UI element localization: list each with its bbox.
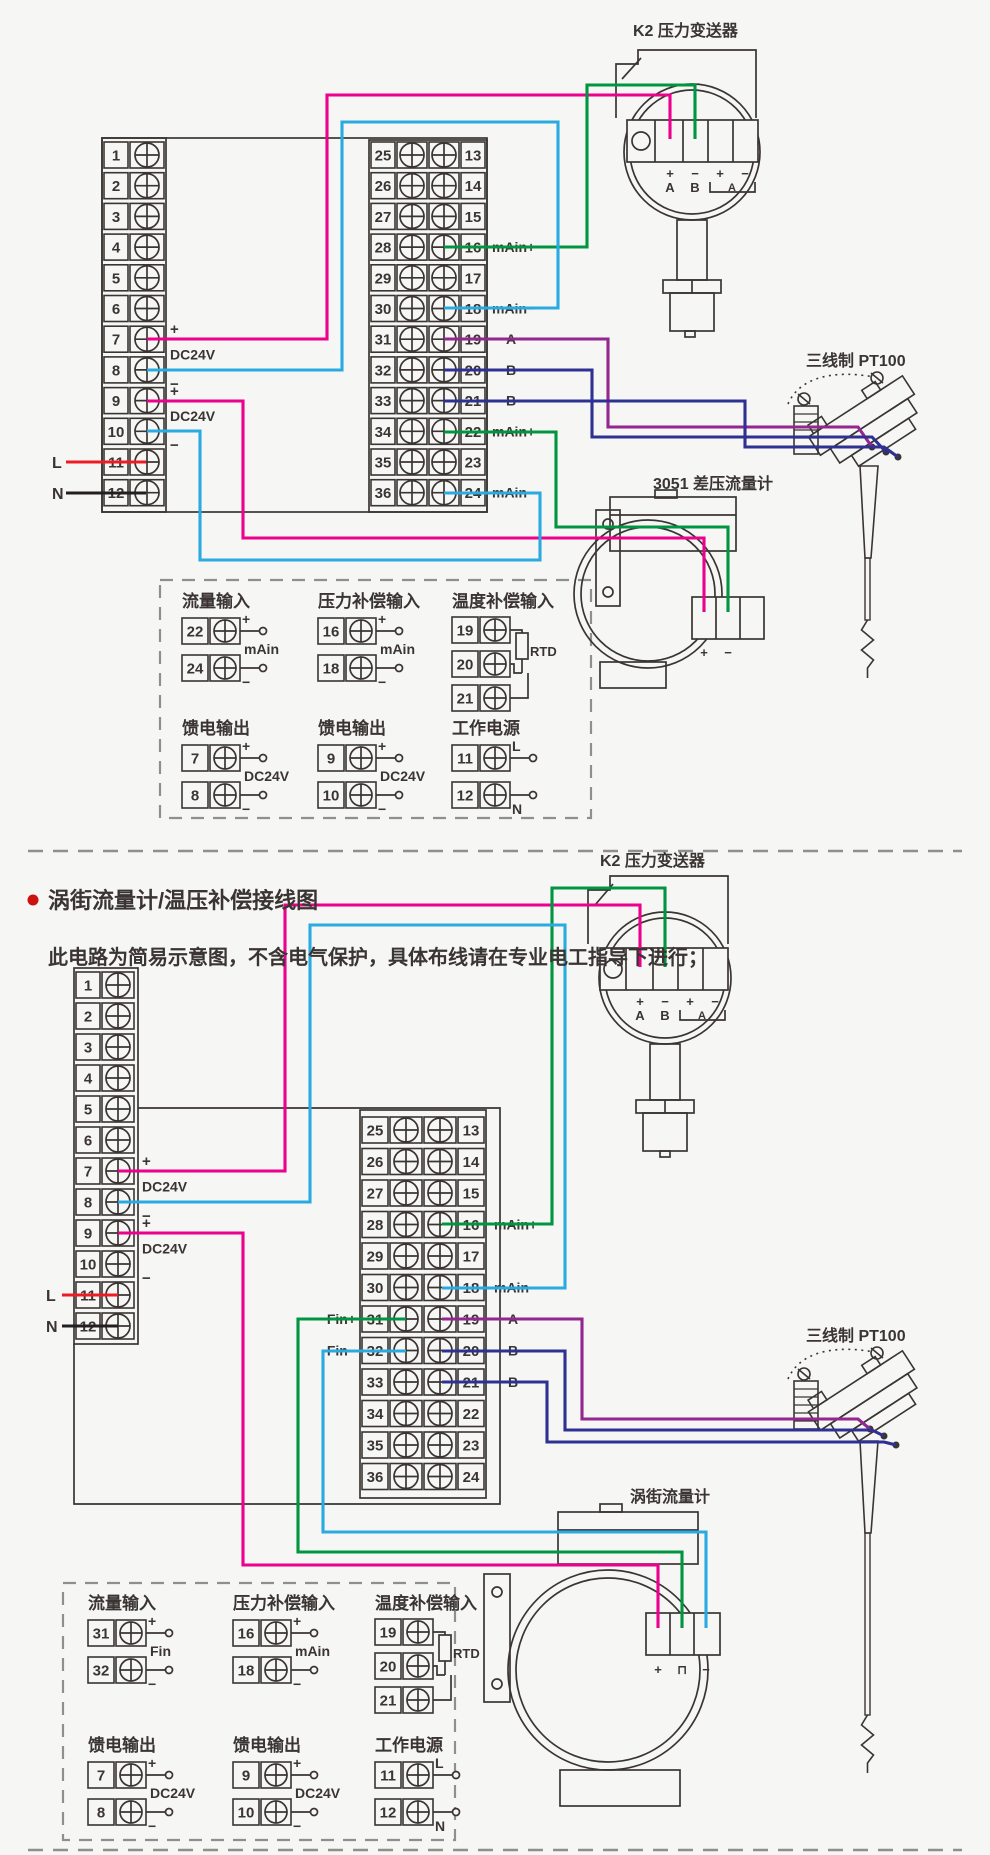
label: DC24V (142, 1179, 188, 1195)
wire-end-icon (166, 1667, 173, 1674)
label: + (378, 738, 386, 754)
meter-mark: − (702, 1662, 710, 1677)
k2-mark: + (686, 994, 694, 1009)
label: + (142, 1215, 151, 1232)
legend-group: 温度补偿输入192021RTD (375, 1593, 480, 1713)
label: 5 (84, 1102, 92, 1119)
device-screws (629, 959, 725, 1645)
label: 14 (463, 1154, 480, 1171)
label: DC24V (170, 408, 216, 424)
meter-mark: + (654, 1662, 662, 1677)
label: N (435, 1818, 445, 1834)
diagram-bottom: 1234567891011122513261427152816291730183… (46, 959, 725, 1841)
label: 35 (367, 1438, 384, 1455)
label: 13 (465, 148, 482, 165)
label: 2 (112, 178, 120, 195)
wire-end-icon (166, 1809, 173, 1816)
k2-sub: A (635, 1008, 645, 1023)
diagram-top: 1234567891011122513261427152816291730183… (52, 131, 763, 819)
label: 18 (323, 661, 340, 678)
dp-flowmeter (574, 490, 764, 688)
label: DC24V (380, 768, 426, 784)
label: 5 (112, 270, 120, 287)
label: 3 (84, 1040, 92, 1057)
label: DC24V (170, 347, 216, 363)
label: + (293, 1613, 301, 1629)
label: 23 (465, 455, 482, 472)
label: 7 (191, 751, 199, 768)
label: 31 (93, 1626, 110, 1643)
wire-21-B (442, 1382, 896, 1445)
bracket-notch (622, 58, 641, 79)
label: 11 (457, 751, 473, 768)
label: + (378, 611, 386, 627)
label: − (148, 1818, 156, 1834)
pt100-label-top: 三线制 PT100 (806, 351, 906, 370)
shape (510, 673, 528, 698)
label: 15 (465, 209, 482, 226)
wire-20-B (444, 370, 886, 452)
label: 9 (242, 1768, 250, 1785)
wire-end-icon (260, 755, 267, 762)
probe-element (862, 1715, 874, 1773)
wire-end-icon (311, 1809, 318, 1816)
wire-end-icon (311, 1630, 318, 1637)
terminal-strip-right: 2513261427152816291730183119322033213422… (360, 1110, 486, 1498)
terminal-strip-right: 2513261427152816291730183119322033213422… (369, 140, 487, 512)
shape (862, 1357, 881, 1374)
label: 22 (187, 624, 204, 641)
label: 馈电输出 (233, 1735, 301, 1755)
k2-sub: A (665, 180, 675, 195)
label: 8 (84, 1195, 92, 1212)
label: 26 (375, 178, 392, 195)
wire-k2-to-16 (444, 85, 695, 247)
label: − (242, 801, 250, 817)
wiring-diagram-page: 1234567891011122513261427152816291730183… (0, 0, 990, 1855)
section-subtitle: 此电路为简易示意图，不含电气保护，具体布线请在专业电工指导下进行； (48, 945, 708, 969)
legend-group: 温度补偿输入192021RTD (452, 591, 557, 711)
label: 10 (323, 788, 340, 805)
k2-mark: − (661, 994, 669, 1009)
vortex-meter-label: 涡街流量计 (630, 1487, 710, 1506)
pt100-sensor (788, 367, 931, 678)
label: − (170, 437, 179, 454)
label: 31 (375, 332, 392, 349)
legend: 流量输入31+32−Fin压力补偿输入16+18−mAin温度补偿输入19202… (63, 1583, 480, 1840)
shape (862, 382, 881, 399)
label: 4 (112, 240, 121, 257)
probe-element (862, 620, 874, 678)
label: + (170, 383, 179, 400)
wire-end-icon (260, 665, 267, 672)
labels-layer: 涡街流量计/温压补偿接线图 此电路为简易示意图，不含电气保护，具体布线请在专业电… (28, 21, 963, 1850)
shape (831, 1374, 917, 1438)
k2-mark: + (716, 166, 724, 181)
label: DC24V (295, 1785, 341, 1801)
pt100-sensor (788, 1342, 931, 1773)
label: 19 (457, 623, 474, 640)
probe-shaft (865, 558, 870, 620)
wiring-diagram-canvas: 1234567891011122513261427152816291730183… (0, 0, 990, 1855)
label: 18 (238, 1663, 255, 1680)
meter-flange (484, 1574, 510, 1702)
label: 30 (375, 301, 392, 318)
connection-head (803, 1342, 931, 1455)
label: 压力补偿输入 (233, 1593, 335, 1613)
shape (808, 376, 914, 455)
k2-sub: A (698, 1010, 706, 1022)
label: − (378, 674, 386, 690)
k2-label-top: K2 压力变送器 (633, 21, 739, 40)
wire-end-icon (396, 628, 403, 635)
label: 9 (327, 751, 335, 768)
label: 4 (84, 1071, 93, 1088)
wire-end-icon (260, 628, 267, 635)
label: 23 (463, 1438, 480, 1455)
label: 27 (375, 209, 392, 226)
label: 34 (375, 424, 392, 441)
label: 温度补偿输入 (375, 1593, 477, 1613)
probe-shaft (865, 1533, 870, 1715)
label: 馈电输出 (318, 718, 386, 738)
label: 32 (375, 362, 392, 379)
meter-flange (596, 510, 620, 606)
label: L (46, 1288, 56, 1305)
terminal-strip-left: 123456789101112 (102, 138, 166, 512)
label: 7 (97, 1768, 105, 1785)
k2-mark: − (741, 166, 749, 181)
label: 6 (112, 301, 120, 318)
label: DC24V (244, 768, 290, 784)
label: 19 (380, 1625, 397, 1642)
label: 12 (380, 1805, 397, 1822)
dp-meter-label: 3051 差压流量计 (653, 474, 773, 493)
label: 25 (375, 148, 392, 165)
pressure-transmitter-top (616, 50, 760, 337)
label: 33 (367, 1375, 384, 1392)
legend: 流量输入22+24−mAin压力补偿输入16+18−mAin温度补偿输入1920… (160, 580, 591, 818)
label: 29 (375, 270, 392, 287)
legend-group: 馈电输出9+10−DC24V (318, 718, 426, 817)
label: 13 (463, 1123, 480, 1140)
label: 7 (112, 332, 120, 349)
wire-end-icon (396, 755, 403, 762)
label: 17 (465, 270, 482, 287)
label: 33 (375, 393, 392, 410)
legend-group: 馈电输出7+8−DC24V (88, 1735, 196, 1834)
wire-31-fin (298, 1319, 682, 1628)
probe-taper (860, 466, 878, 558)
label: 12 (457, 788, 474, 805)
wire-end-icon (453, 1809, 460, 1816)
legend-group: 馈电输出7+8−DC24V (182, 718, 290, 817)
shape (433, 1666, 445, 1675)
label: + (148, 1755, 156, 1771)
wire-end-icon (311, 1667, 318, 1674)
rtd-resistor-icon (516, 633, 528, 659)
label: 流量输入 (88, 1593, 156, 1613)
label: 21 (457, 691, 474, 708)
probe-taper (860, 1441, 878, 1533)
label: 10 (108, 424, 125, 441)
label: 8 (191, 788, 199, 805)
label: + (170, 321, 179, 338)
bullet-icon (28, 895, 39, 906)
label: 21 (380, 1693, 397, 1710)
vortex-flowmeter (484, 1504, 720, 1806)
label: − (148, 1676, 156, 1692)
label: − (142, 1270, 151, 1287)
label: + (293, 1755, 301, 1771)
label: mAin (380, 641, 415, 657)
k2-mark: − (691, 166, 699, 181)
label: L (435, 1755, 444, 1771)
label: + (242, 738, 250, 754)
wire-end-icon (453, 1772, 460, 1779)
label: 温度补偿输入 (452, 591, 554, 611)
neck (650, 1044, 680, 1100)
label: 10 (238, 1805, 255, 1822)
terminal-strip-left: 123456789101112 (74, 968, 138, 1344)
wire-end-icon (396, 792, 403, 799)
cap-chain-arc (788, 1349, 874, 1379)
wire-end-icon (530, 792, 537, 799)
label: + (148, 1613, 156, 1629)
label: 11 (380, 1768, 396, 1785)
meter-cap (558, 1512, 698, 1564)
label: 30 (367, 1280, 384, 1297)
device-screws (660, 131, 763, 629)
label: 1 (112, 148, 120, 165)
legend-group: 压力补偿输入16+18−mAin (318, 591, 420, 690)
k2-mark: − (711, 994, 719, 1009)
wire-end-icon (311, 1772, 318, 1779)
legend-group: 流量输入22+24−mAin (182, 591, 279, 690)
label: N (512, 801, 522, 817)
label: 15 (463, 1186, 480, 1203)
label: 22 (463, 1406, 480, 1423)
label: 流量输入 (182, 591, 250, 611)
k2-sub: A (728, 182, 736, 194)
label: mAin (244, 641, 279, 657)
pt100-label-bottom: 三线制 PT100 (806, 1326, 906, 1345)
wire-end-icon (166, 1772, 173, 1779)
label: + (142, 1153, 151, 1170)
pt100-layer (788, 367, 931, 1773)
label: 26 (367, 1154, 384, 1171)
meter-mark: − (724, 645, 732, 660)
label: 24 (187, 661, 204, 678)
legend-group: 压力补偿输入16+18−mAin (233, 1593, 335, 1692)
label: 2 (84, 1009, 92, 1026)
label: 1 (84, 978, 92, 995)
label: 10 (80, 1257, 97, 1274)
label: 17 (463, 1249, 480, 1266)
label: 20 (457, 657, 474, 674)
label: 14 (465, 178, 482, 195)
bracket (588, 876, 728, 944)
label: 8 (112, 362, 120, 379)
label: 28 (375, 240, 392, 257)
wire-end-icon (530, 755, 537, 762)
section-title: 涡街流量计/温压补偿接线图 (48, 888, 318, 913)
label: 28 (367, 1217, 384, 1234)
label: 27 (367, 1186, 384, 1203)
shape (831, 399, 917, 463)
label: 3 (112, 209, 120, 226)
wire-end-icon (396, 665, 403, 672)
label: DC24V (142, 1241, 188, 1257)
label: 24 (463, 1469, 480, 1486)
label: 馈电输出 (88, 1735, 156, 1755)
label: N (52, 486, 64, 503)
wire-end-icon (166, 1630, 173, 1637)
legend-group: 馈电输出9+10−DC24V (233, 1735, 341, 1834)
label: 9 (112, 393, 120, 410)
label: L (512, 738, 521, 754)
connection-head (803, 367, 931, 480)
k2-mark: + (636, 994, 644, 1009)
label: 16 (323, 624, 340, 641)
label: N (46, 1319, 58, 1336)
label: 8 (97, 1805, 105, 1822)
label: RTD (453, 1646, 480, 1661)
cap-chain-arc (788, 374, 874, 404)
label: 35 (375, 455, 392, 472)
label: 25 (367, 1123, 384, 1140)
label: − (293, 1676, 301, 1692)
label: − (378, 801, 386, 817)
meter-mark: + (700, 645, 708, 660)
k2-label-bottom: K2 压力变送器 (600, 851, 706, 870)
label: Fin (150, 1643, 171, 1659)
label: 压力补偿输入 (318, 591, 420, 611)
label: 6 (84, 1133, 92, 1150)
label: 36 (367, 1469, 384, 1486)
label: mAin (295, 1643, 330, 1659)
meter-mark: ⊓ (677, 1662, 687, 1677)
neck (677, 220, 707, 280)
label: 工作电源 (375, 1735, 443, 1755)
label: 29 (367, 1249, 384, 1266)
label: L (52, 455, 62, 472)
terminal-strip (627, 120, 758, 162)
shape (852, 418, 916, 466)
label: 工作电源 (452, 718, 520, 738)
label: 9 (84, 1226, 92, 1243)
k2-mark: + (666, 166, 674, 181)
rtd-resistor-icon (439, 1635, 451, 1661)
shape (433, 1675, 451, 1700)
legend-group: 工作电源11L12N (452, 718, 537, 817)
label: 36 (375, 485, 392, 502)
legend-group: 工作电源11L12N (375, 1735, 460, 1834)
label: − (293, 1818, 301, 1834)
label: DC24V (150, 1785, 196, 1801)
k2-sub: B (690, 180, 699, 195)
label: 16 (238, 1626, 255, 1643)
label: 20 (380, 1659, 397, 1676)
legend-group: 流量输入31+32−Fin (88, 1593, 173, 1692)
shape (510, 664, 522, 673)
k2-sub: B (660, 1008, 669, 1023)
label: 34 (367, 1406, 384, 1423)
label: − (242, 674, 250, 690)
label: 32 (93, 1663, 110, 1680)
wire-end-icon (260, 792, 267, 799)
label: + (242, 611, 250, 627)
label: RTD (530, 644, 557, 659)
label: 7 (84, 1164, 92, 1181)
wire-k2-to-16 (442, 888, 665, 1224)
label: 馈电输出 (182, 718, 250, 738)
